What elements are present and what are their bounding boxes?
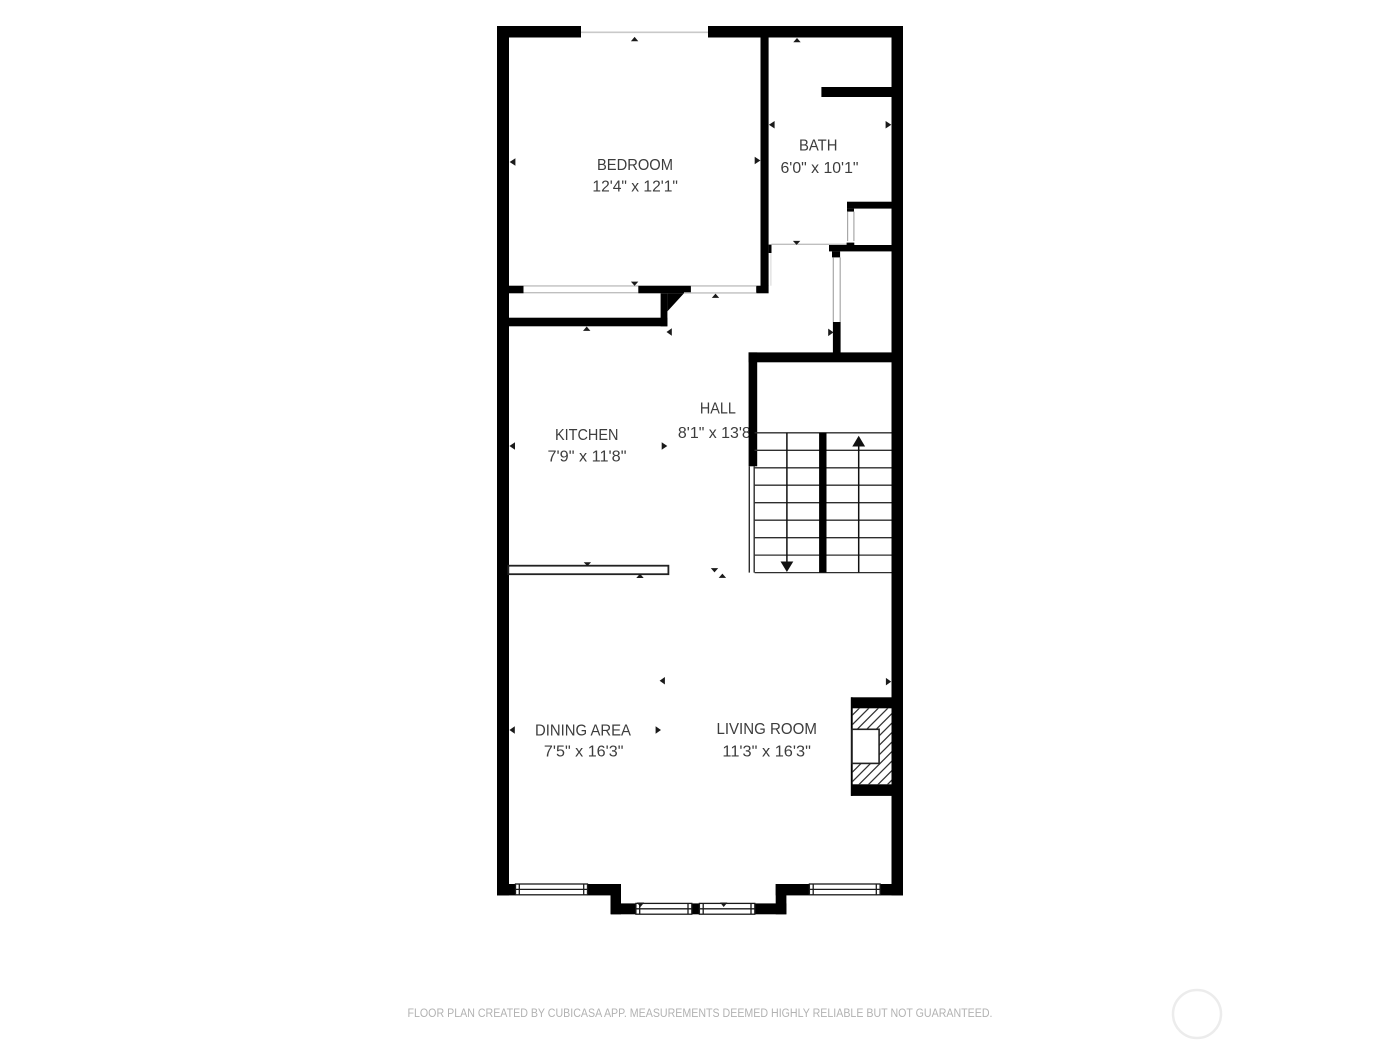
- svg-text:DINING AREA: DINING AREA: [535, 723, 631, 740]
- svg-text:8'1" x 13'8": 8'1" x 13'8": [678, 425, 757, 442]
- svg-text:BEDROOM: BEDROOM: [597, 157, 673, 174]
- svg-text:HALL: HALL: [700, 401, 736, 418]
- svg-text:11'3" x 16'3": 11'3" x 16'3": [722, 744, 811, 761]
- svg-text:BATH: BATH: [799, 138, 838, 155]
- svg-text:12'4" x 12'1": 12'4" x 12'1": [592, 179, 678, 196]
- svg-text:LIVING ROOM: LIVING ROOM: [716, 721, 817, 738]
- svg-text:6'0" x 10'1": 6'0" x 10'1": [781, 160, 859, 177]
- svg-text:7'9" x 11'8": 7'9" x 11'8": [548, 449, 627, 466]
- svg-text:FLOOR PLAN CREATED BY CUBICASA: FLOOR PLAN CREATED BY CUBICASA APP. MEAS…: [408, 1006, 993, 1020]
- svg-text:KITCHEN: KITCHEN: [555, 427, 619, 444]
- svg-text:7'5" x 16'3": 7'5" x 16'3": [544, 744, 624, 761]
